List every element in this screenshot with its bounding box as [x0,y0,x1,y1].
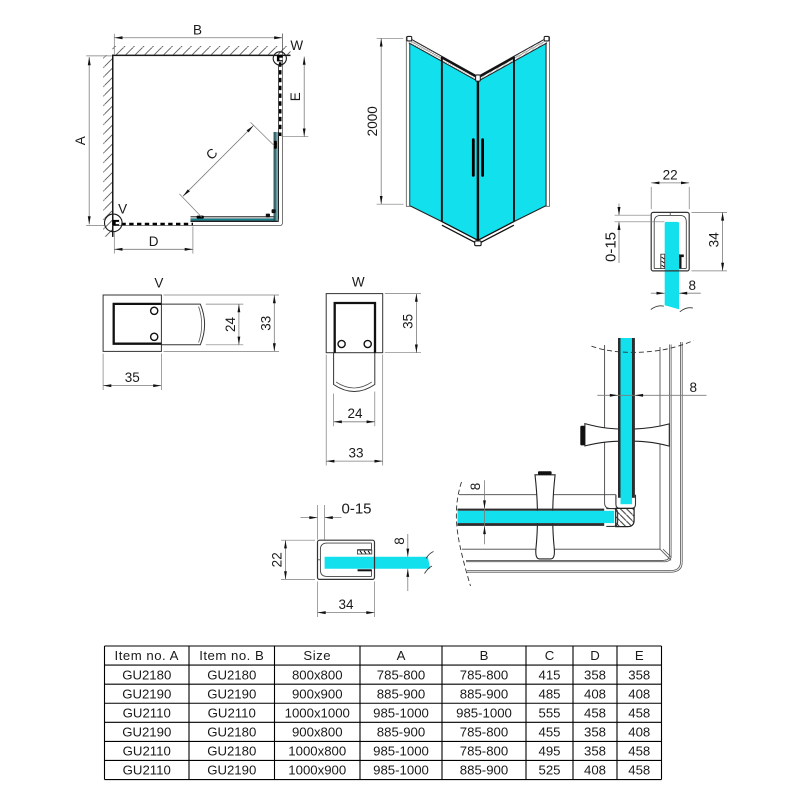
svg-text:485: 485 [538,686,560,701]
svg-text:GU2190: GU2190 [207,686,256,701]
svg-text:408: 408 [628,725,650,740]
svg-text:8: 8 [690,380,698,395]
svg-text:B: B [480,648,489,663]
svg-text:Item no. A: Item no. A [115,648,179,663]
svg-text:408: 408 [628,686,650,701]
svg-text:358: 358 [584,744,606,759]
svg-text:GU2190: GU2190 [122,686,171,701]
svg-text:V: V [154,275,163,290]
svg-text:GU2190: GU2190 [207,763,256,778]
svg-text:8: 8 [468,483,483,491]
svg-text:885-900: 885-900 [460,686,508,701]
svg-text:E: E [635,648,644,663]
svg-text:458: 458 [584,705,606,720]
svg-text:358: 358 [628,667,650,682]
svg-text:985-1000: 985-1000 [456,705,512,720]
svg-text:458: 458 [628,744,650,759]
svg-text:22: 22 [270,552,285,567]
svg-text:34: 34 [338,597,354,612]
svg-text:34: 34 [707,232,722,248]
svg-text:1000x1000: 1000x1000 [285,705,350,720]
svg-text:D: D [590,648,600,663]
svg-text:985-1000: 985-1000 [373,763,429,778]
svg-text:Size: Size [303,648,331,663]
svg-text:E: E [288,92,303,101]
svg-text:408: 408 [584,686,606,701]
svg-text:33: 33 [348,445,363,460]
svg-text:800x800: 800x800 [292,667,343,682]
svg-text:33: 33 [258,316,273,331]
svg-text:8: 8 [689,278,697,293]
svg-text:0-15: 0-15 [602,232,619,262]
svg-text:A: A [73,136,88,145]
svg-text:A: A [397,648,406,663]
svg-text:GU2180: GU2180 [207,725,256,740]
svg-text:GU2110: GU2110 [123,705,171,720]
svg-text:885-900: 885-900 [377,725,425,740]
svg-text:Item no. B: Item no. B [199,648,264,663]
svg-text:458: 458 [628,705,650,720]
svg-text:358: 358 [584,725,606,740]
svg-text:GU2180: GU2180 [207,667,256,682]
svg-text:495: 495 [538,744,560,759]
svg-text:2000: 2000 [365,106,380,136]
svg-text:W: W [290,38,303,53]
svg-text:900x800: 900x800 [292,725,343,740]
svg-text:GU2180: GU2180 [122,667,171,682]
svg-text:GU2110: GU2110 [123,763,171,778]
svg-text:458: 458 [628,763,650,778]
svg-text:35: 35 [125,370,140,385]
svg-text:V: V [118,201,127,216]
svg-text:35: 35 [400,314,415,329]
svg-text:22: 22 [663,167,678,182]
svg-text:785-800: 785-800 [460,667,508,682]
svg-text:358: 358 [584,667,606,682]
svg-text:8: 8 [392,537,407,545]
svg-text:525: 525 [538,763,560,778]
svg-text:1000x900: 1000x900 [288,763,346,778]
svg-text:D: D [149,234,159,249]
svg-text:GU2180: GU2180 [207,744,256,759]
svg-text:985-1000: 985-1000 [373,744,429,759]
svg-text:985-1000: 985-1000 [373,705,429,720]
svg-text:B: B [193,22,202,37]
svg-text:885-900: 885-900 [377,686,425,701]
svg-text:24: 24 [223,317,238,333]
svg-text:785-800: 785-800 [377,667,425,682]
svg-text:GU2110: GU2110 [208,705,256,720]
svg-text:408: 408 [584,763,606,778]
svg-text:C: C [545,648,555,663]
svg-text:W: W [352,275,365,290]
svg-text:GU2110: GU2110 [123,744,171,759]
svg-text:415: 415 [538,667,560,682]
svg-text:455: 455 [538,725,560,740]
svg-text:555: 555 [538,705,560,720]
svg-text:785-800: 785-800 [460,744,508,759]
svg-text:1000x800: 1000x800 [288,744,346,759]
svg-text:785-800: 785-800 [460,725,508,740]
svg-text:885-900: 885-900 [460,763,508,778]
svg-text:24: 24 [347,406,363,421]
svg-text:900x900: 900x900 [292,686,343,701]
svg-text:GU2190: GU2190 [122,725,171,740]
svg-text:0-15: 0-15 [341,501,371,518]
